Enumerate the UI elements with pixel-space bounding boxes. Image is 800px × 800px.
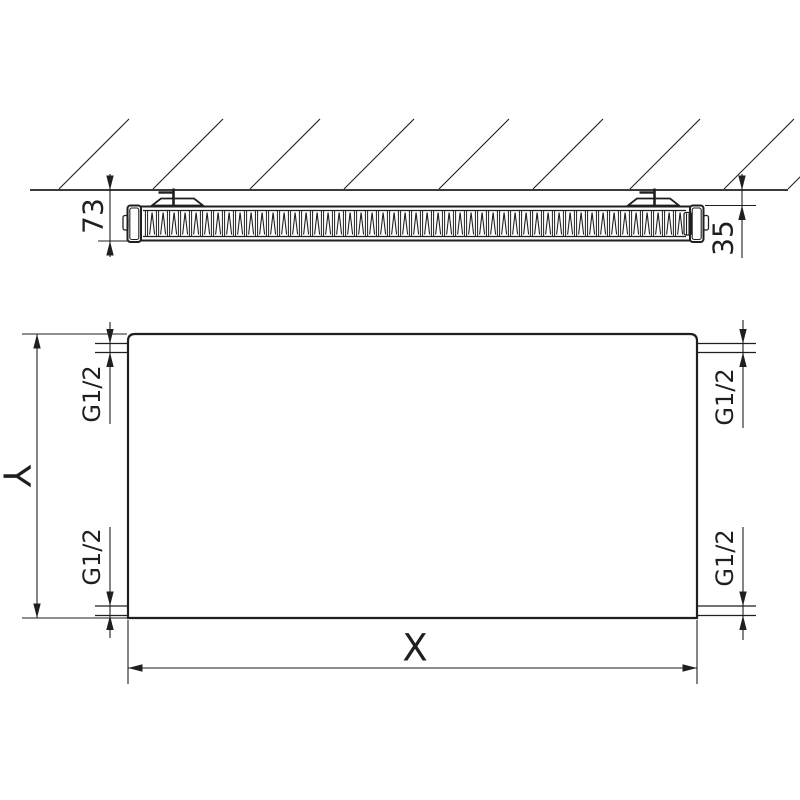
width-dimension-label: X <box>402 627 427 670</box>
mounting-bracket-left <box>152 189 203 206</box>
mounting-bracket-right <box>628 189 679 206</box>
thread-label-bottom-right: G1/2 <box>711 529 739 586</box>
radiator-front-panel <box>128 334 697 618</box>
thread-label-top-right: G1/2 <box>711 368 739 425</box>
radiator-end-cap-right <box>684 206 709 243</box>
thread-label-bottom-left: G1/2 <box>78 528 106 585</box>
connection-stub-top-left <box>95 344 128 353</box>
connection-stub-bottom-left <box>95 606 128 616</box>
dimension-g12-bottom-right: G1/2 <box>711 527 747 640</box>
connection-stub-bottom-right <box>697 606 756 616</box>
dimension-g12-top-right: G1/2 <box>711 320 747 428</box>
dimension-g12-bottom-left: G1/2 <box>78 527 114 638</box>
radiator-side-view <box>123 189 709 243</box>
dimension-depth-73: 73 <box>77 174 131 257</box>
dimension-height-y: Y <box>0 334 127 618</box>
height-dimension-label: Y <box>0 464 38 488</box>
depth-dimension-label: 73 <box>77 198 110 234</box>
radiator-front-view <box>95 334 756 618</box>
thread-label-top-left: G1/2 <box>78 365 106 422</box>
convector-fins <box>144 211 684 236</box>
dimension-g12-top-left: G1/2 <box>78 322 114 424</box>
dimension-width-x: X <box>128 620 697 684</box>
wall-hatching <box>59 119 800 189</box>
wall-distance-dimension-label: 35 <box>707 220 740 256</box>
radiator-dimension-diagram: 73 35 Y <box>0 0 800 800</box>
wall-section <box>30 119 800 190</box>
connection-stub-top-right <box>697 344 756 353</box>
technical-drawing-page: 73 35 Y <box>0 0 800 800</box>
radiator-drawing-canvas: 73 35 Y <box>0 0 800 800</box>
dimension-wall-distance-35: 35 <box>705 174 756 258</box>
radiator-end-cap-left <box>123 206 141 243</box>
